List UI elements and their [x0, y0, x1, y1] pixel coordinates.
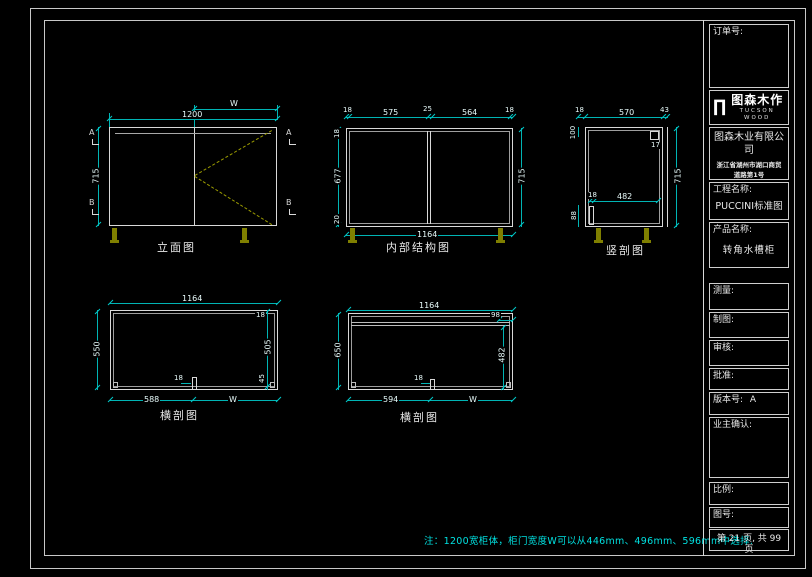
dim-line — [181, 383, 191, 384]
cross-section-view-b: 1164 98 482 650 18 594 W 横剖图 — [330, 295, 545, 430]
titleblock-review-cell: 审核: — [709, 340, 789, 366]
titleblock-owner-cell: 业主确认: — [709, 417, 789, 478]
dim-line — [590, 201, 658, 202]
back-panel-line — [351, 322, 510, 323]
company-address-line1: 浙江省湖州市湖口商贸 — [713, 161, 785, 169]
dim-label: 677 — [335, 167, 343, 184]
dim-line — [110, 400, 278, 401]
dim-line — [348, 310, 513, 311]
draft-label: 制图: — [713, 315, 734, 325]
dim-label: 715 — [675, 167, 683, 184]
owner-confirm-label: 业主确认: — [713, 420, 752, 430]
dim-label: 550 — [94, 340, 102, 357]
dim-label: 482 — [499, 346, 507, 363]
titleblock-product-cell: 产品名称: 转角水槽柜 — [709, 222, 789, 268]
panel-inner-line — [351, 316, 510, 387]
dim-label: 100 — [570, 125, 577, 140]
internal-structure-view: 18 575 25 564 18 715 18 677 20 1164 内部结构… — [330, 100, 535, 258]
dim-label: 505 — [265, 338, 273, 355]
product-label: 产品名称: — [713, 225, 752, 235]
dim-line — [578, 127, 579, 137]
back-rail-section — [589, 206, 594, 225]
dim-line — [578, 117, 668, 118]
cabinet-foot — [644, 228, 649, 241]
dim-label: 88 — [571, 210, 578, 221]
cabinet-foot — [242, 228, 247, 241]
dim-label: 43 — [659, 107, 670, 114]
section-marker-b: B — [286, 199, 292, 207]
view-label: 立面图 — [157, 239, 196, 255]
dim-line — [421, 383, 430, 384]
titleblock-page-cell: 第 21 页, 共 99 页 — [709, 529, 789, 551]
view-label: 内部结构图 — [386, 239, 451, 255]
project-label: 工程名称: — [713, 185, 752, 195]
titleblock-divider — [703, 20, 704, 556]
dim-label: W — [468, 396, 478, 404]
center-stile-line — [430, 131, 431, 224]
company-name: 图森木业有限公司 — [713, 132, 785, 157]
view-label: 横剖图 — [400, 409, 439, 425]
titleblock-project-cell: 工程名称: PUCCINI标准图 — [709, 182, 789, 220]
divider-plan-section — [192, 377, 197, 390]
dim-height: 715 — [93, 167, 101, 184]
dim-label: 17 — [650, 142, 661, 149]
titleblock-drawing-no-cell: 图号: — [709, 507, 789, 528]
titleblock-scale-cell: 比例: — [709, 482, 789, 505]
dim-label: 570 — [618, 109, 635, 117]
titleblock-company-cell: 图森木业有限公司 浙江省湖州市湖口商贸 道路第1号 — [709, 127, 789, 180]
sheet-note: 注：1200宽柜体，柜门宽度W可以从446mm、496mm、596mm中选择. — [424, 533, 753, 547]
foot-plan-symbol — [270, 382, 275, 388]
dim-label: 594 — [382, 396, 399, 404]
dim-label: 1164 — [181, 295, 203, 303]
dim-label: 18 — [504, 107, 515, 114]
dim-label: 575 — [382, 109, 399, 117]
door-front-line — [667, 127, 668, 227]
section-marker-a: A — [286, 129, 291, 137]
dim-label: 98 — [490, 312, 501, 319]
view-label: 竖剖图 — [606, 242, 645, 258]
order-label: 订单号: — [713, 27, 743, 37]
dim-label: 18 — [587, 192, 598, 199]
version-label: 版本号: — [713, 395, 743, 405]
company-address-line2: 道路第1号 — [713, 171, 785, 179]
dim-label: 1164 — [416, 231, 438, 239]
cabinet-foot — [596, 228, 601, 241]
cabinet-foot — [350, 228, 355, 241]
dim-label: 45 — [259, 373, 266, 384]
cross-section-view-a: 1164 550 18 505 45 18 588 W 横剖图 — [85, 295, 300, 430]
dim-label: 564 — [461, 109, 478, 117]
front-rail-section — [650, 131, 659, 140]
section-marker-tick — [92, 209, 99, 215]
vertical-section-view: 18 570 43 17 715 18 482 100 88 竖剖图 — [560, 100, 700, 258]
dim-line — [110, 303, 278, 304]
scale-label: 比例: — [713, 485, 734, 495]
dim-line — [109, 119, 278, 120]
dim-width: 1200 — [181, 111, 203, 119]
version-value: A — [750, 395, 756, 405]
titleblock-order-cell: 订单号: — [709, 24, 789, 88]
cabinet-foot — [112, 228, 117, 241]
foot-plan-symbol — [506, 382, 511, 388]
foot-plan-symbol — [113, 382, 118, 388]
dim-label: 25 — [422, 106, 433, 113]
product-name: 转角水槽柜 — [713, 245, 785, 257]
section-marker-tick — [289, 139, 296, 145]
dim-label: 482 — [616, 193, 633, 201]
section-marker-a: A — [89, 129, 94, 137]
cad-sheet: W 1200 715 A A B B 立面图 18 — [0, 0, 812, 577]
view-label: 横剖图 — [160, 407, 199, 423]
dim-label: 588 — [143, 396, 160, 404]
cabinet-foot — [498, 228, 503, 241]
foot-plan-symbol — [351, 382, 356, 388]
titleblock-approve-cell: 批准: — [709, 368, 789, 390]
back-panel-line — [351, 325, 510, 326]
dim-label: 18 — [574, 107, 585, 114]
dim-label: 18 — [255, 312, 266, 319]
brand-subtitle: TUCSON WOOD — [729, 108, 785, 122]
titleblock-version-cell: 版本号: A — [709, 392, 789, 415]
drawing-no-label: 图号: — [713, 510, 734, 520]
titleblock-survey-cell: 测量: — [709, 283, 789, 310]
section-marker-tick — [92, 139, 99, 145]
dim-label: 18 — [173, 375, 184, 382]
dim-label: 18 — [413, 375, 424, 382]
dim-label: 20 — [334, 214, 341, 225]
dim-label: W — [228, 396, 238, 404]
dim-line — [194, 109, 278, 110]
dim-door-width: W — [229, 100, 239, 108]
titleblock-logo-cell: ∏ 图森木作 TUCSON WOOD — [709, 90, 789, 125]
project-name: PUCCINI标准图 — [713, 201, 785, 213]
survey-label: 测量: — [713, 286, 734, 296]
panel-inner-line — [113, 313, 275, 387]
dim-label: 650 — [335, 341, 343, 358]
dim-label: 715 — [519, 167, 527, 184]
top-rail-line — [115, 133, 271, 134]
dim-label: 18 — [334, 128, 341, 139]
section-marker-b: B — [89, 199, 95, 207]
brand-logo-icon: ∏ — [713, 99, 726, 116]
titleblock-draft-cell: 制图: — [709, 312, 789, 338]
approve-label: 批准: — [713, 371, 734, 381]
elevation-view: W 1200 715 A A B B 立面图 — [88, 100, 300, 258]
review-label: 审核: — [713, 343, 734, 353]
divider-plan-section — [430, 379, 435, 390]
extension-line — [109, 113, 110, 127]
section-marker-tick — [289, 209, 296, 215]
dim-label: 1164 — [418, 302, 440, 310]
dim-line — [578, 205, 579, 227]
brand-name: 图森木作 — [729, 93, 785, 108]
center-stile-line — [427, 131, 428, 224]
dim-label: 18 — [342, 107, 353, 114]
